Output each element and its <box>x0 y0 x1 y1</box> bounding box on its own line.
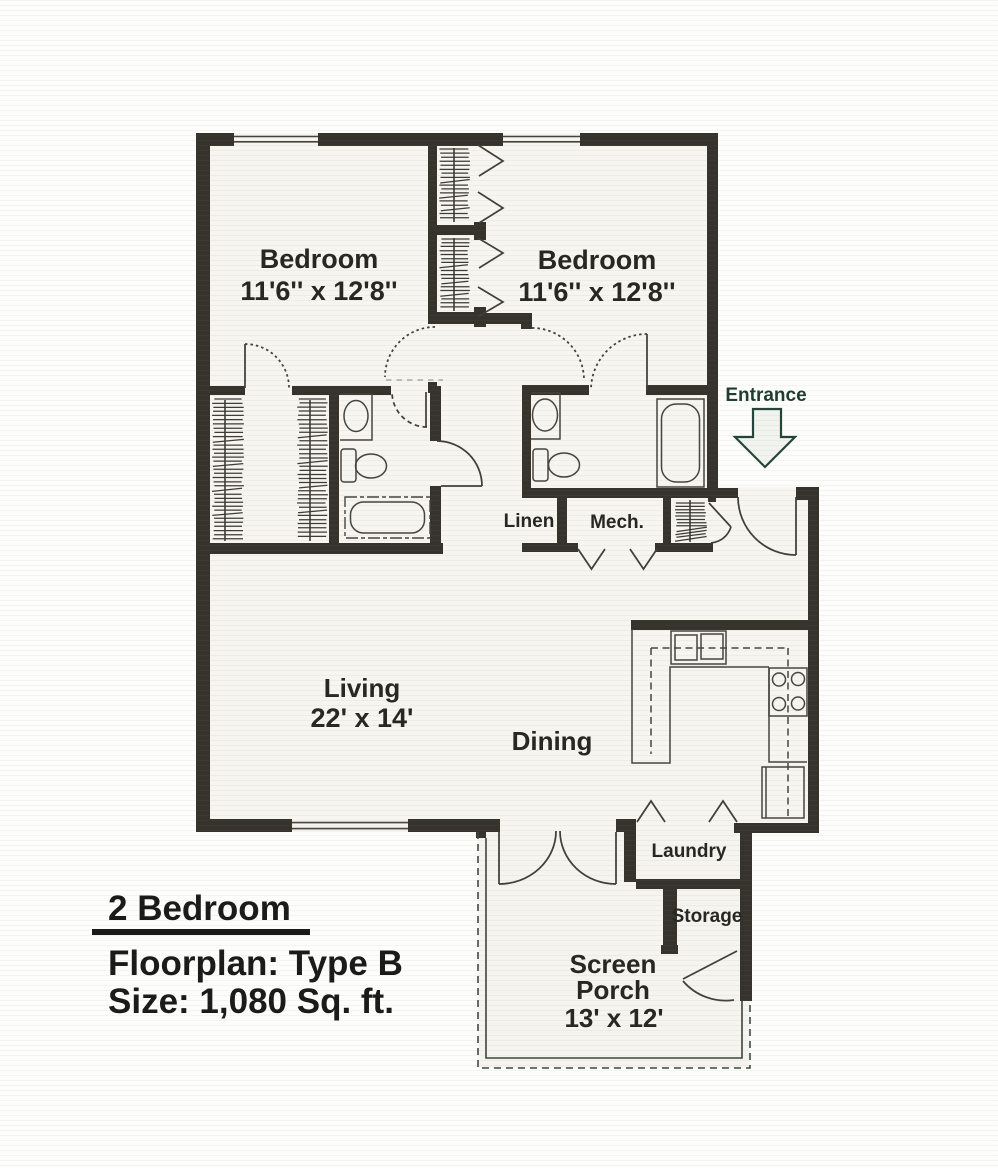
svg-text:13' x 12': 13' x 12' <box>564 1003 663 1033</box>
svg-text:11'6'' x 12'8'': 11'6'' x 12'8'' <box>518 277 675 307</box>
svg-text:22' x 14': 22' x 14' <box>311 703 414 733</box>
svg-text:Living: Living <box>324 673 401 703</box>
svg-text:Linen: Linen <box>504 511 555 532</box>
svg-text:Porch: Porch <box>576 975 650 1005</box>
svg-text:Floorplan: Type B: Floorplan: Type B <box>108 944 403 983</box>
svg-text:Size: 1,080 Sq. ft.: Size: 1,080 Sq. ft. <box>108 982 394 1021</box>
svg-text:11'6'' x 12'8'': 11'6'' x 12'8'' <box>240 276 397 306</box>
svg-text:Bedroom: Bedroom <box>538 245 657 275</box>
svg-text:2 Bedroom: 2 Bedroom <box>108 889 291 928</box>
svg-text:Laundry: Laundry <box>652 841 727 862</box>
svg-text:Entrance: Entrance <box>725 385 806 406</box>
svg-text:Bedroom: Bedroom <box>260 244 379 274</box>
svg-text:Storage: Storage <box>672 906 743 927</box>
svg-text:Mech.: Mech. <box>590 512 644 533</box>
svg-text:Dining: Dining <box>512 726 593 756</box>
